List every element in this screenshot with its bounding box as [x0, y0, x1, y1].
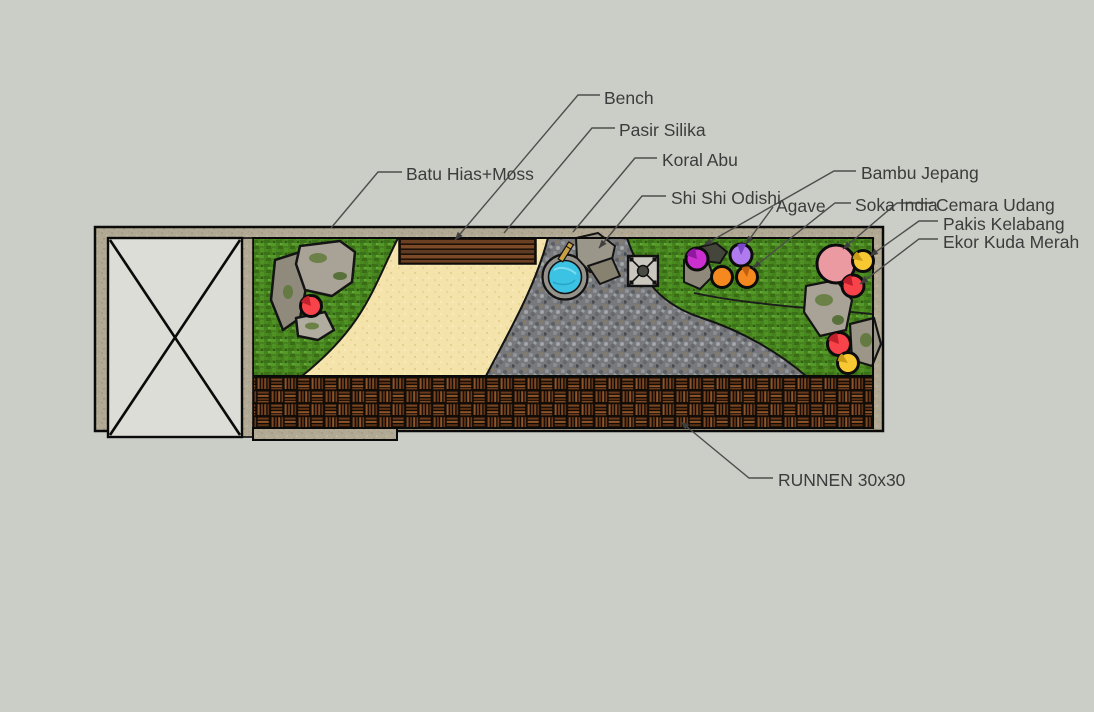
plant-cluster-left-of-center [684, 243, 758, 289]
label-shi-shi-odishi: Shi Shi Odishi [671, 188, 781, 208]
label-batu-hias-moss: Batu Hias+Moss [406, 164, 534, 184]
label-runnen: RUNNEN 30x30 [778, 470, 906, 490]
plan-viewport: Bench Pasir Silika Koral Abu Shi Shi Odi… [0, 0, 1094, 712]
structure-cell [108, 238, 253, 437]
garden-interior [253, 233, 881, 428]
label-agave: Agave [776, 196, 826, 216]
label-koral-abu: Koral Abu [662, 150, 738, 170]
label-pakis-kelabang: Pakis Kelabang [943, 214, 1065, 234]
garden-plan-canvas: Bench Pasir Silika Koral Abu Shi Shi Odi… [0, 0, 1094, 712]
bench [399, 238, 536, 264]
step-slab [253, 428, 397, 440]
soka-india-1 [712, 267, 733, 288]
label-bench: Bench [604, 88, 654, 108]
zone-runnen-deck [253, 376, 873, 428]
stone-drain-square [628, 256, 658, 286]
label-pasir-silika: Pasir Silika [619, 120, 706, 140]
label-ekor-kuda-merah: Ekor Kuda Merah [943, 232, 1079, 252]
divider-wall [242, 238, 253, 437]
label-soka-india: Soka India [855, 195, 938, 215]
label-cemara-udang: Cemara Udang [936, 195, 1055, 215]
label-bambu-jepang: Bambu Jepang [861, 163, 979, 183]
